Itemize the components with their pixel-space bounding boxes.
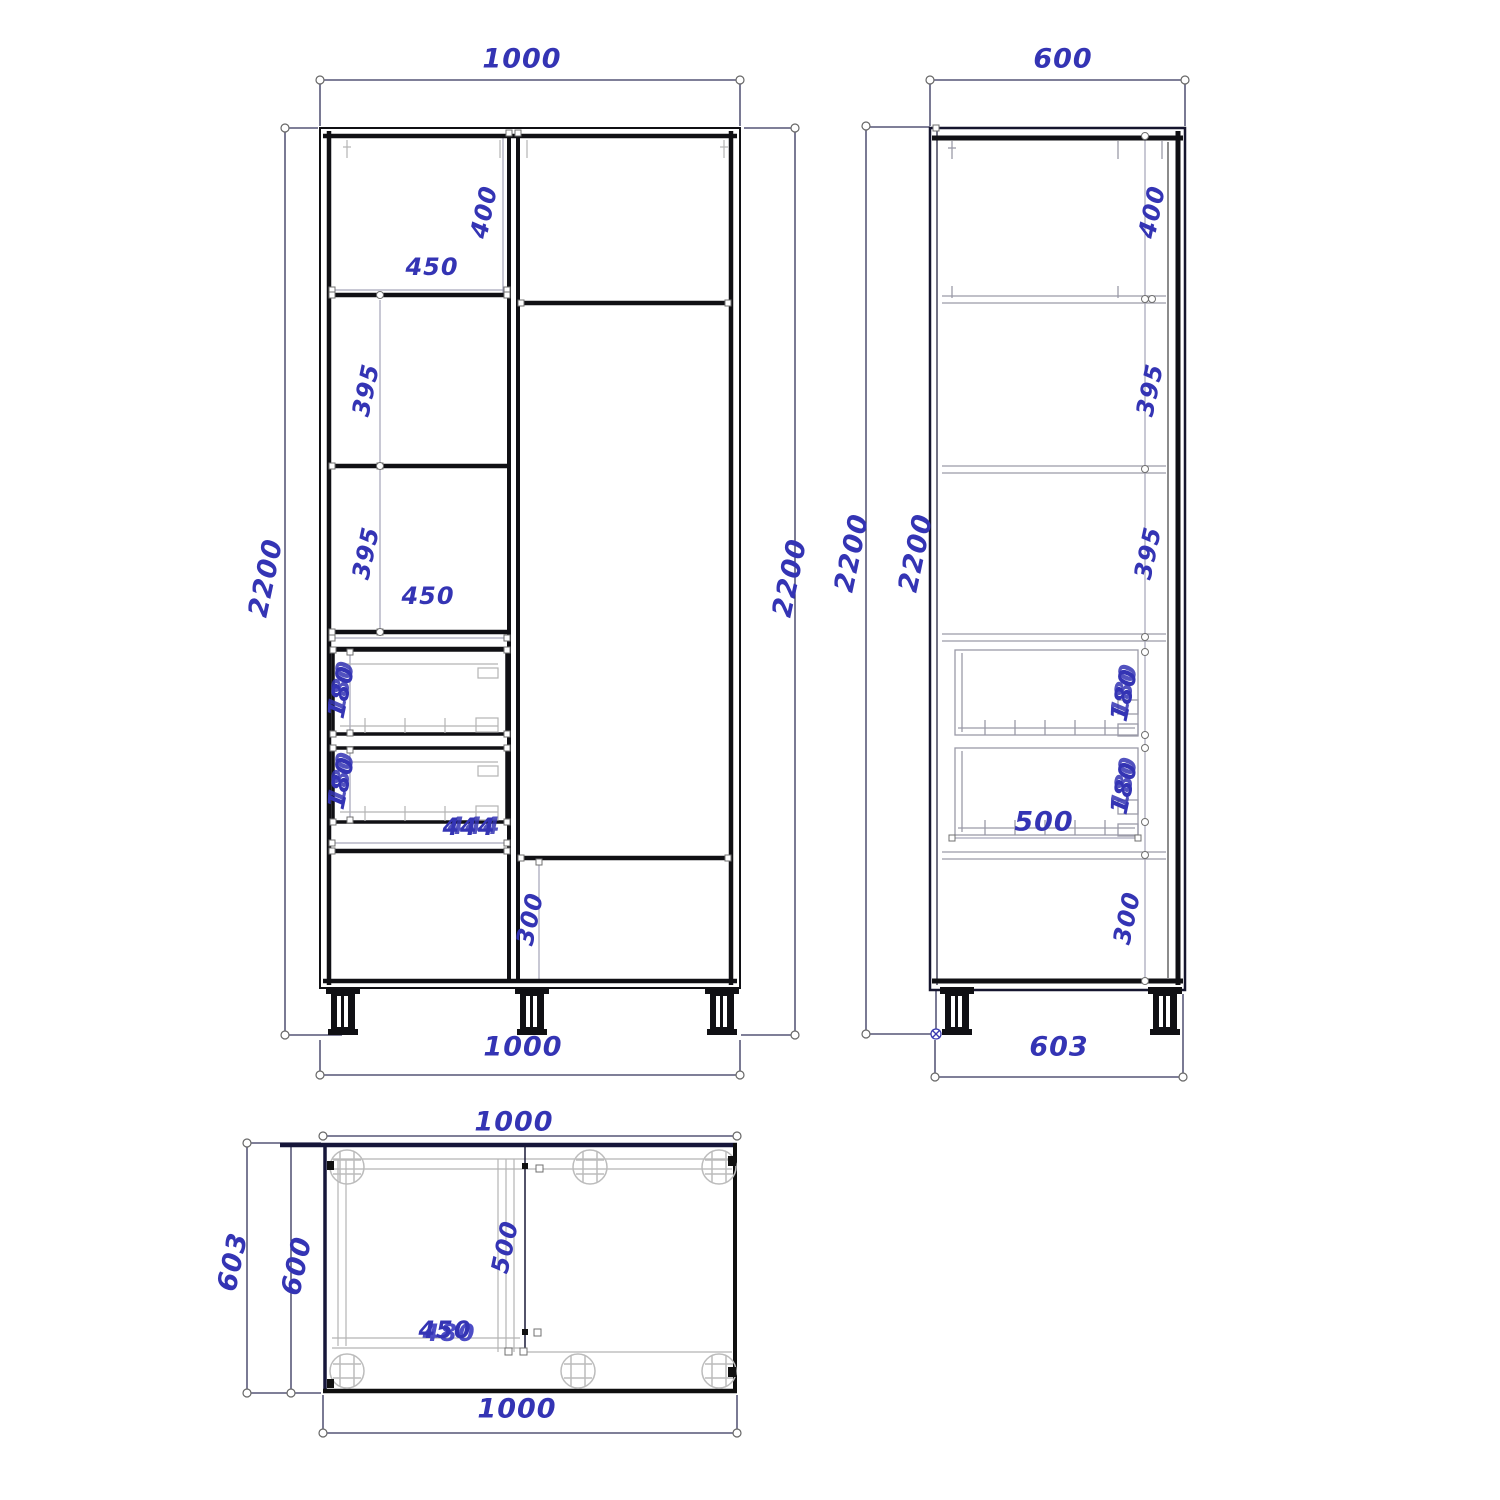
top-interior-panels — [332, 1159, 732, 1352]
top-dimension-lines — [247, 1136, 737, 1433]
side-legs — [940, 987, 1182, 1035]
dim-front-drawer-width: 444 — [442, 813, 495, 841]
dim-front-width-bottom: 1000 — [483, 1032, 562, 1063]
dim-top-width-top: 1000 — [474, 1107, 553, 1138]
drawing-canvas: 1000 1000 2200 2200 400 450 395 395 450 … — [0, 0, 1500, 1500]
top-hinge-marks — [327, 1156, 736, 1388]
dim-top-interior-width: 450 — [418, 1316, 471, 1344]
dim-front-width-top: 1000 — [482, 44, 561, 75]
front-legs — [326, 987, 739, 1035]
dim-side-width-top: 600 — [1033, 44, 1092, 75]
side-view-structure — [820, 30, 1240, 1100]
front-connector-nodes — [329, 130, 731, 865]
dim-side-drawer-depth: 500 — [1014, 807, 1073, 838]
side-interior-dims — [952, 133, 1145, 983]
front-body — [320, 128, 740, 988]
side-shelves — [942, 141, 1166, 859]
front-drawer-1 — [333, 650, 507, 734]
dim-top-width-bottom: 1000 — [477, 1394, 556, 1425]
side-connector-nodes — [933, 125, 1156, 985]
dim-front-top-shelf-width: 450 — [405, 253, 458, 281]
dim-front-shelf-width: 450 — [401, 582, 454, 610]
front-hardware-details — [340, 140, 728, 821]
dim-side-width-bottom: 603 — [1029, 1032, 1088, 1063]
side-inner-height-marker — [931, 1029, 941, 1039]
